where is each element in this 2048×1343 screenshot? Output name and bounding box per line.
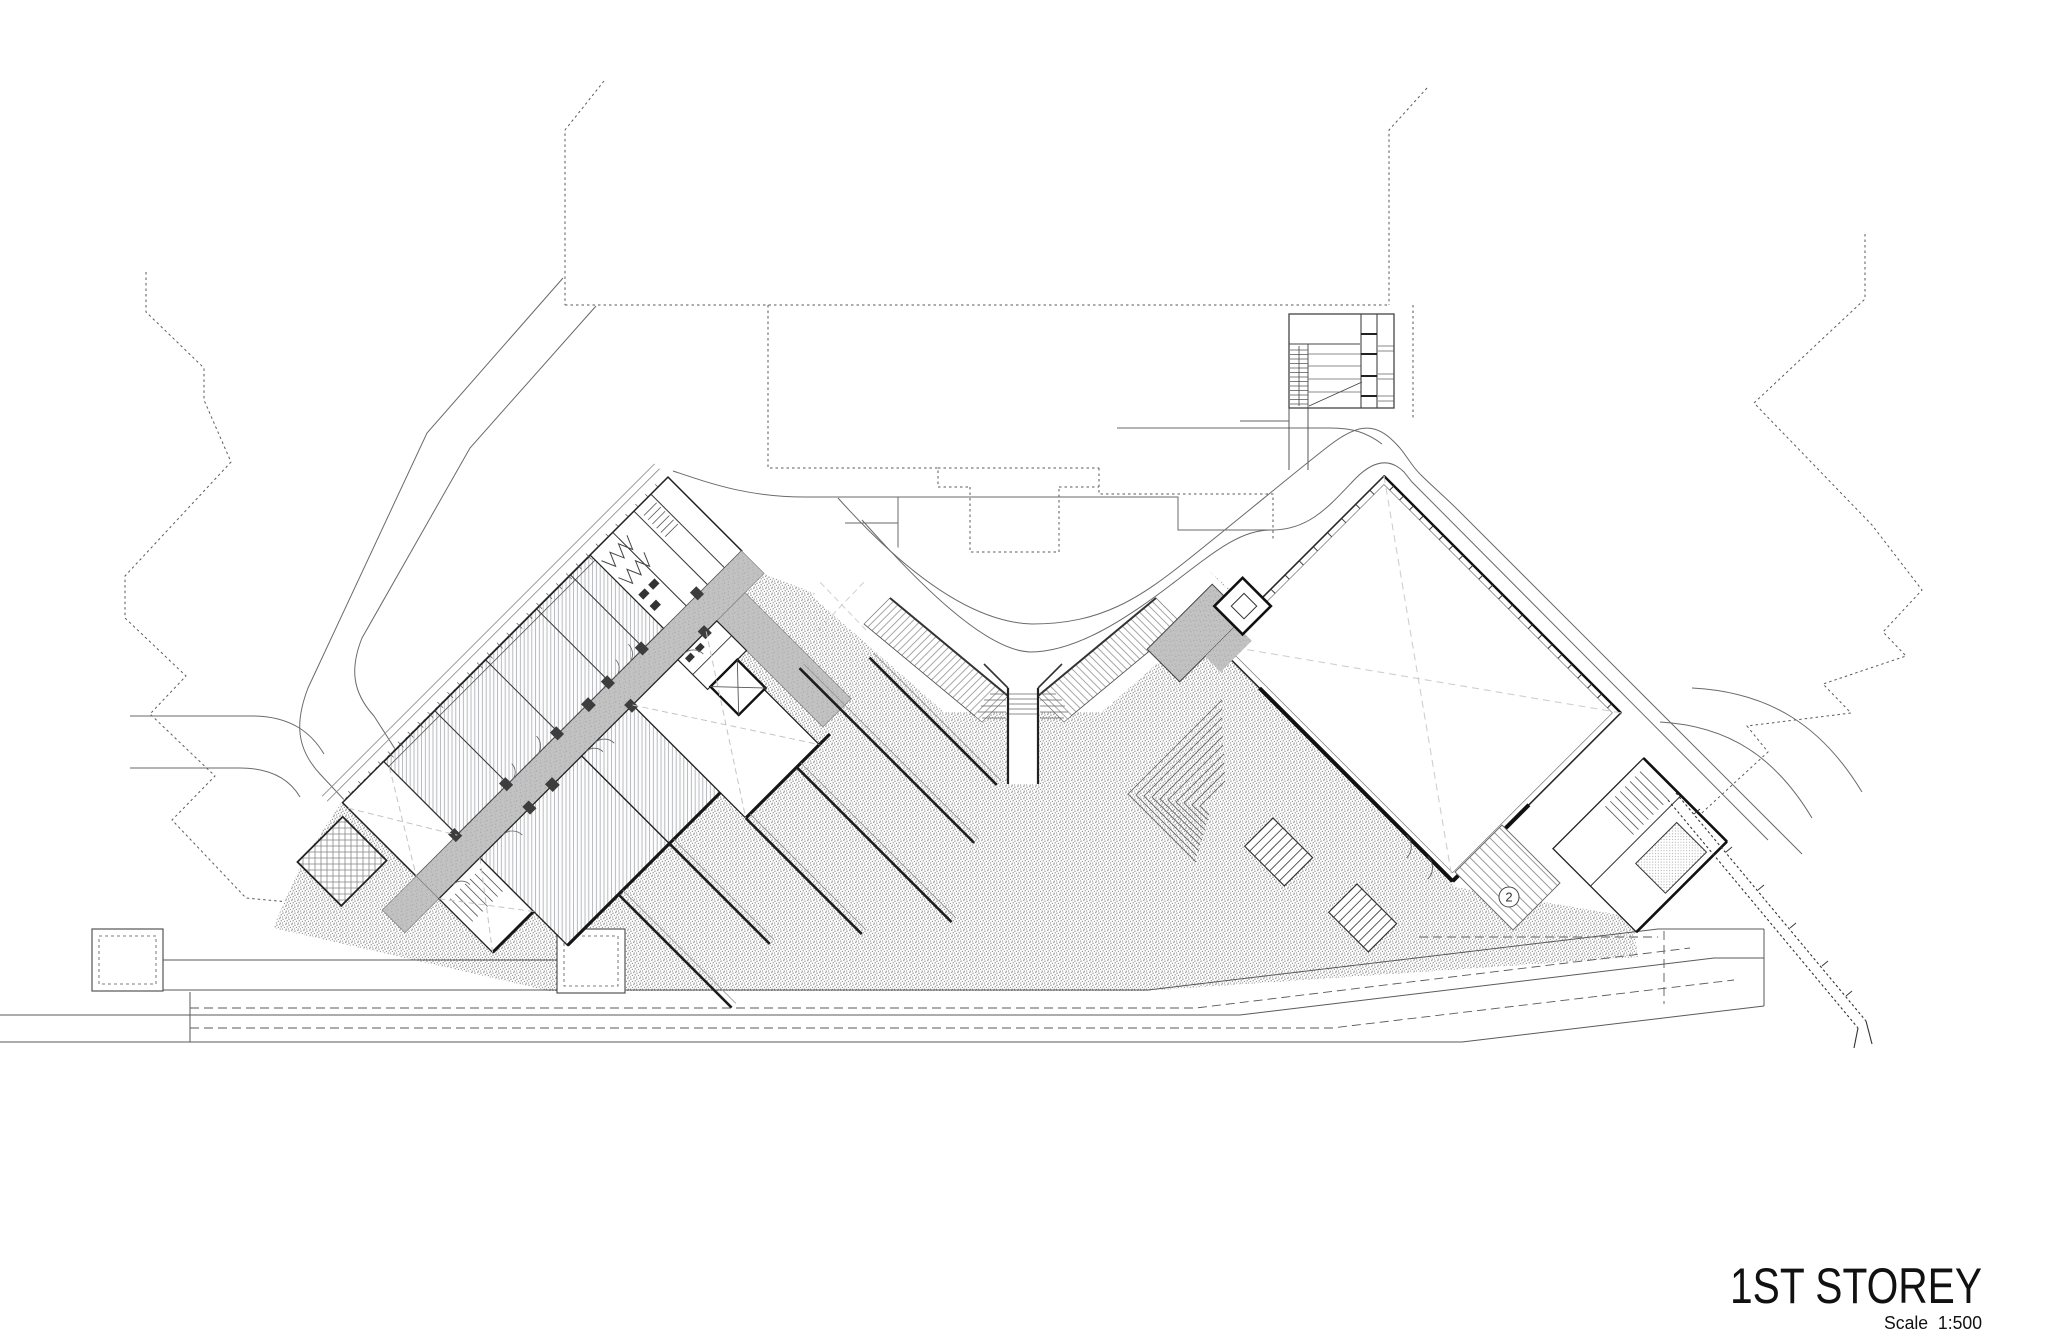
svg-text:2: 2 (1505, 890, 1512, 905)
svg-text:Scale 1:500: Scale 1:500 (1884, 1313, 1982, 1333)
svg-text:1ST STOREY: 1ST STOREY (1730, 1258, 1982, 1314)
